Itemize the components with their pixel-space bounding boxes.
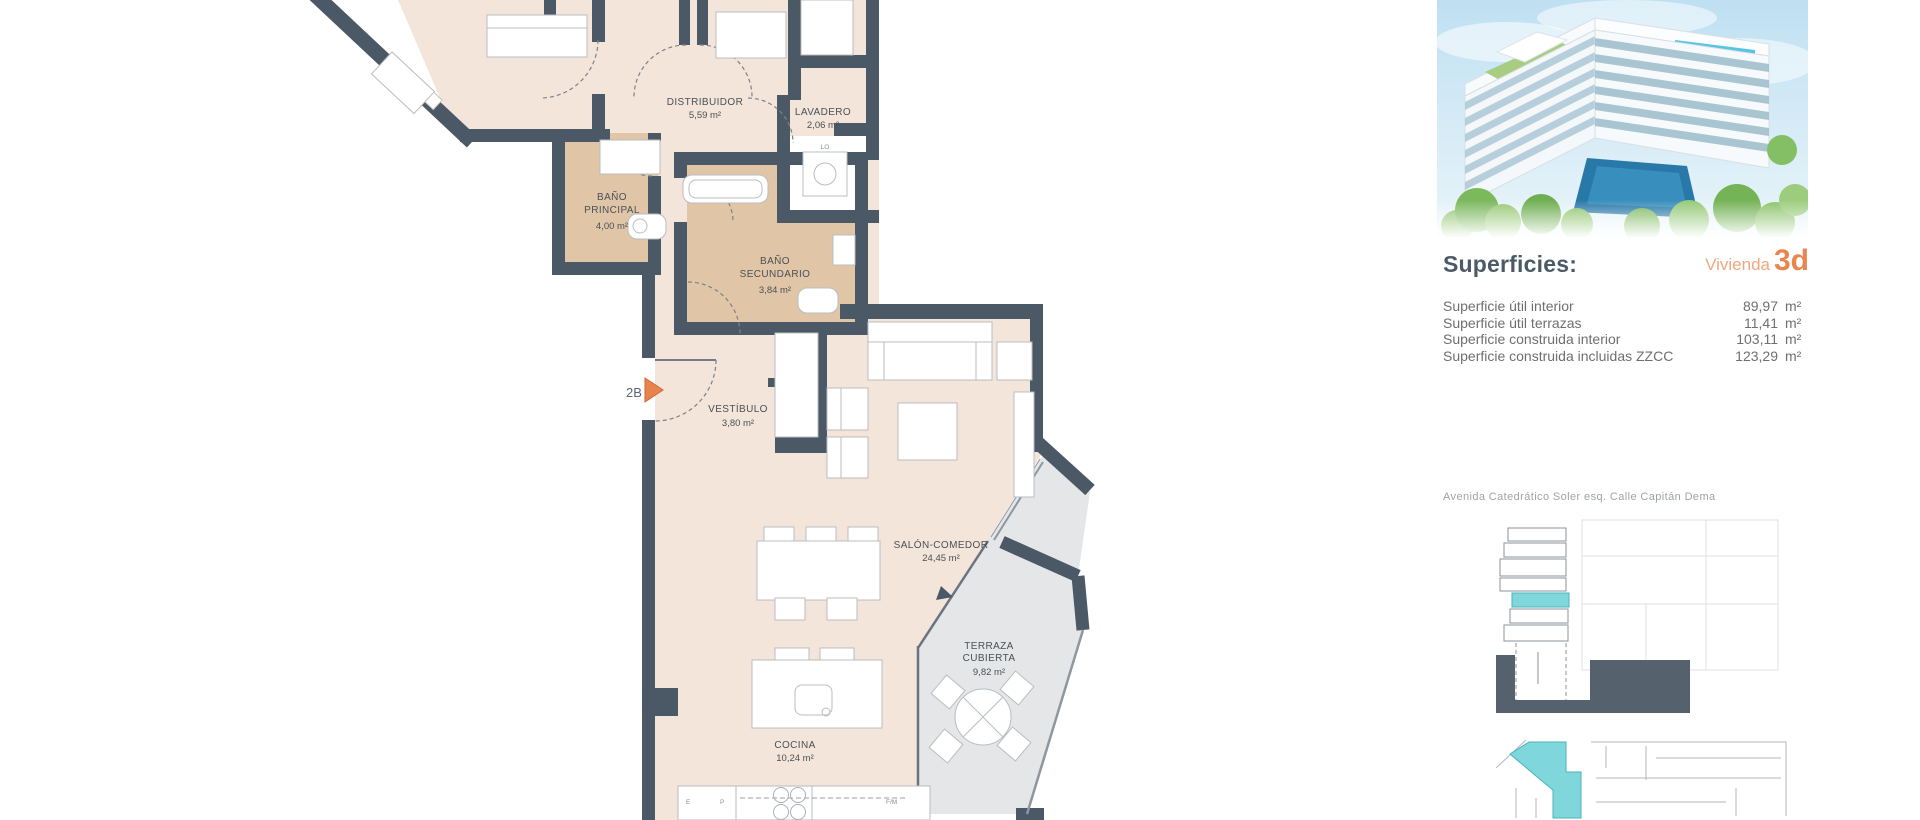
svg-text:CUBIERTA: CUBIERTA — [963, 653, 1016, 664]
dining-table — [757, 541, 880, 600]
unit-label: Vivienda — [1705, 255, 1770, 274]
closet — [716, 12, 786, 58]
svg-text:DISTRIBUIDOR: DISTRIBUIDOR — [667, 97, 743, 108]
highlighted-unit — [1510, 742, 1581, 818]
bathtub — [683, 175, 768, 203]
appliance-code: P — [720, 799, 724, 806]
toilet — [798, 288, 838, 313]
unit-code-label: 2B — [626, 385, 642, 400]
svg-text:24,45 m²: 24,45 m² — [922, 553, 960, 564]
room-fragment — [801, 0, 853, 55]
chair — [775, 598, 805, 620]
armchair — [997, 342, 1032, 380]
floor-plan: E P F/M 2B DISTRIBUIDOR 5,59 m² LAVADERO… — [0, 0, 1150, 820]
svg-text:BAÑO: BAÑO — [760, 254, 790, 267]
superficies-row: Superficie útil interior 89,97 m² — [1443, 298, 1809, 315]
superficies-row: Superficie construida interior 103,11 m² — [1443, 331, 1809, 348]
superficies-row: Superficie útil terrazas 11,41 m² — [1443, 315, 1809, 332]
chair — [827, 598, 857, 620]
svg-text:9,82 m²: 9,82 m² — [973, 667, 1005, 678]
floor-key-diagram — [1496, 738, 1796, 820]
basin — [833, 235, 855, 265]
kitchen-island — [752, 660, 882, 728]
svg-text:SECUNDARIO: SECUNDARIO — [740, 269, 811, 280]
svg-text:LAVADERO: LAVADERO — [795, 107, 851, 118]
svg-text:3,80 m²: 3,80 m² — [722, 418, 754, 429]
svg-text:10,24 m²: 10,24 m² — [776, 753, 814, 764]
svg-text:VESTÍBULO: VESTÍBULO — [708, 402, 768, 415]
building-rendering — [1437, 0, 1808, 238]
washer — [803, 152, 847, 196]
armchair — [827, 388, 868, 430]
svg-text:4,00 m²: 4,00 m² — [596, 221, 628, 232]
svg-text:5,59 m²: 5,59 m² — [689, 110, 721, 121]
unit-number: 3d — [1774, 244, 1809, 277]
appliance-code: F/M — [886, 799, 897, 806]
highlighted-floor — [1512, 593, 1569, 607]
laundry-fixture-code: LO — [821, 144, 830, 151]
svg-text:2,06 m²: 2,06 m² — [807, 120, 839, 131]
bed — [487, 15, 587, 57]
sideboard — [1014, 392, 1034, 497]
svg-text:PRINCIPAL: PRINCIPAL — [584, 205, 640, 216]
kitchen-counter: E P F/M — [678, 786, 930, 820]
bath1-counter — [600, 140, 660, 174]
address-line: Avenida Catedrático Soler esq. Calle Cap… — [1443, 491, 1716, 503]
superficies-panel: Superficies: Vivienda3d Superficie útil … — [1443, 244, 1809, 364]
section-key-diagram — [1496, 512, 1792, 718]
superficies-row: Superficie construida incluidas ZZCC 123… — [1443, 348, 1809, 365]
svg-text:3,84 m²: 3,84 m² — [759, 285, 791, 296]
closet — [775, 333, 818, 437]
superficies-title: Superficies: — [1443, 251, 1577, 278]
svg-text:SALÓN-COMEDOR: SALÓN-COMEDOR — [894, 538, 989, 551]
superficies-rows: Superficie útil interior 89,97 m² Superf… — [1443, 298, 1809, 364]
coffee-table — [898, 403, 957, 460]
svg-text:TERRAZA: TERRAZA — [964, 641, 1013, 652]
svg-text:COCINA: COCINA — [774, 740, 815, 751]
podium — [1496, 655, 1690, 713]
armchair — [827, 437, 868, 478]
sofa — [868, 322, 992, 380]
pillar — [655, 688, 678, 716]
svg-text:BAÑO: BAÑO — [597, 190, 627, 203]
appliance-code: E — [686, 799, 691, 806]
